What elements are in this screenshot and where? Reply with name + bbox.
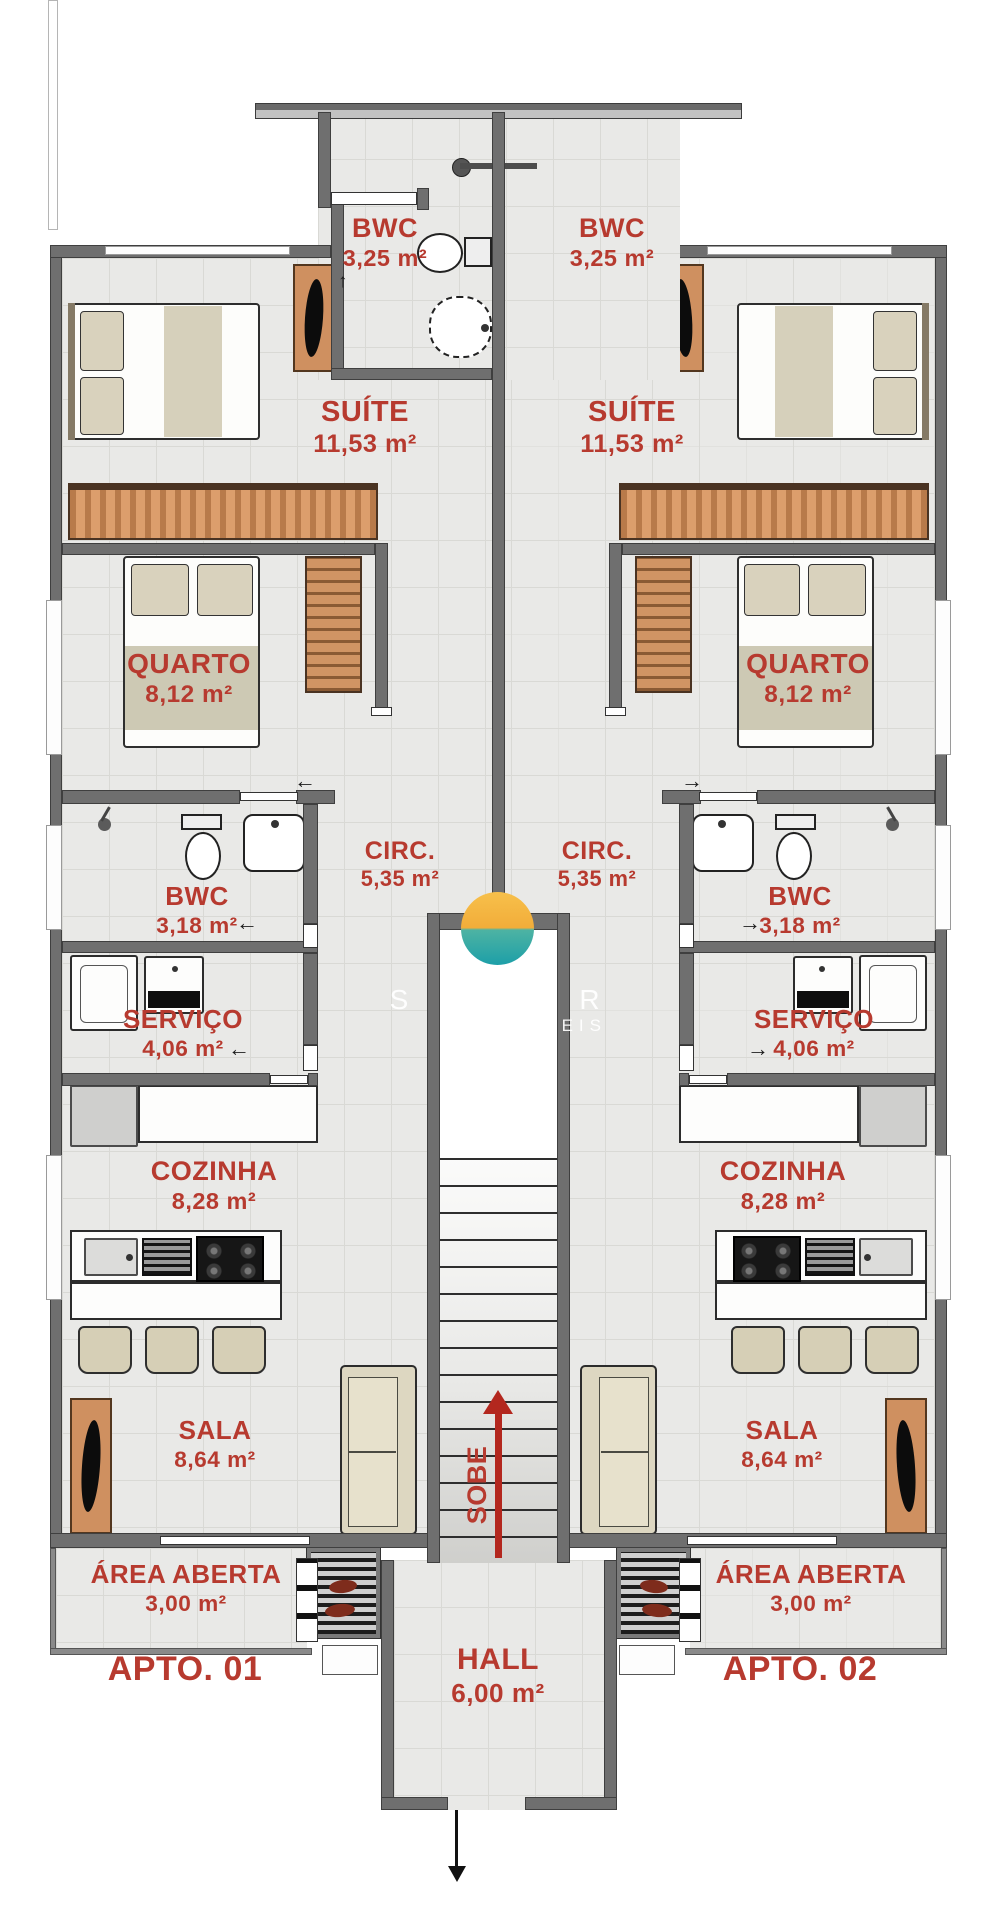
room-label-suite-right: SUÍTE 11,53 m²: [580, 396, 684, 459]
open-area-window: [322, 1645, 378, 1675]
open-area-edge-left: [50, 1548, 56, 1653]
stairs-direction-label: SOBE: [462, 1446, 492, 1525]
room-name: SALA: [179, 1415, 252, 1445]
room-label-quarto-right: QUARTO 8,12 m²: [746, 648, 870, 709]
hall-wall-bottom-left: [381, 1797, 448, 1810]
servico-cozinha-wall: [62, 1073, 270, 1086]
room-area: 8,28 m²: [151, 1188, 278, 1214]
sala-sliding-door: [160, 1536, 310, 1545]
room-area: 8,28 m²: [720, 1188, 847, 1214]
bar-stool: [78, 1326, 132, 1374]
room-name: SERVIÇO: [123, 1004, 243, 1034]
room-name: COZINHA: [720, 1156, 847, 1186]
bar-stool: [212, 1326, 266, 1374]
quarto-pillow: [131, 564, 189, 616]
stairs-up-arrow-line: [495, 1412, 502, 1558]
room-label-area-aberta-right: ÁREA ABERTA 3,00 m²: [716, 1560, 907, 1616]
door-arrow-icon: ↑: [338, 272, 348, 291]
room-label-cozinha-left: COZINHA 8,28 m²: [151, 1156, 278, 1215]
wardrobe-closet: [68, 483, 378, 540]
room-name: BWC: [579, 213, 645, 243]
stairwell-wall-left: [427, 913, 440, 1563]
room-area: 3,25 m²: [343, 245, 427, 271]
room-label-bwc-top-right: BWC 3,25 m²: [570, 213, 654, 272]
plant-icon: [79, 1419, 103, 1512]
entrance-door-line: [455, 1810, 458, 1868]
stairs-up-arrow-head: [483, 1390, 513, 1414]
bathroom-sink: [243, 814, 305, 872]
room-label-area-aberta-left: ÁREA ABERTA 3,00 m²: [91, 1560, 282, 1616]
watermark-text-fragment: A R: [514, 984, 619, 1016]
bwc-servico-wall: [62, 941, 318, 953]
room-label-circ-left: CIRC. 5,35 m²: [361, 837, 439, 891]
hall-wall-right: [604, 1560, 617, 1810]
room-name: SUÍTE: [588, 396, 676, 428]
suite-blanket: [164, 306, 222, 437]
plant-icon: [302, 278, 325, 357]
watermark-logo: [461, 892, 534, 965]
toilet-bowl: [185, 832, 221, 880]
suite-pillow: [80, 311, 124, 371]
entrance-arrow-icon: [448, 1866, 466, 1882]
room-name: SUÍTE: [321, 396, 409, 428]
bwc-door-lintel: [303, 924, 318, 948]
corridor-wall: [375, 543, 388, 713]
grill-food: [324, 1602, 355, 1618]
room-name: BWC: [768, 881, 832, 911]
quarto-door-lintel: [240, 792, 298, 801]
room-label-servico-right: SERVIÇO 4,06 m²: [754, 1005, 874, 1061]
side-window: [46, 825, 62, 930]
room-label-sala-right: SALA 8,64 m²: [741, 1416, 822, 1472]
room-area: 8,12 m²: [127, 681, 251, 708]
watermark-text-fragment: ÓVEIS: [525, 1016, 607, 1036]
floor-plan-canvas: ← ← ← ↑: [0, 0, 997, 1920]
room-label-servico-left: SERVIÇO 4,06 m²: [123, 1005, 243, 1061]
suite-bed-headboard: [68, 303, 75, 440]
bwc-side-wall: [303, 804, 318, 924]
room-area: 3,18 m²: [759, 913, 840, 938]
room-label-cozinha-right: COZINHA 8,28 m²: [720, 1156, 847, 1215]
room-label-quarto-left: QUARTO 8,12 m²: [127, 648, 251, 709]
room-area: 3,18 m²: [156, 913, 237, 938]
room-area: 8,64 m²: [174, 1447, 255, 1472]
room-label-sala-left: SALA 8,64 m²: [174, 1416, 255, 1472]
room-name: SALA: [746, 1415, 819, 1445]
side-window: [46, 1155, 62, 1300]
room-name: ÁREA ABERTA: [716, 1559, 907, 1589]
room-name: BWC: [352, 213, 418, 243]
stove-cooktop: [196, 1236, 264, 1282]
grill-side-panel: [296, 1558, 318, 1642]
room-label-bwc-left: BWC 3,18 m²: [156, 882, 237, 938]
room-name: ÁREA ABERTA: [91, 1559, 282, 1589]
room-area: 3,25 m²: [570, 245, 654, 271]
quarto-circ-wall: [62, 790, 240, 804]
room-area: 8,64 m²: [741, 1447, 822, 1472]
room-area: 3,00 m²: [91, 1591, 282, 1616]
room-name: HALL: [457, 1643, 539, 1676]
room-area: 5,35 m²: [558, 867, 636, 891]
quarto-dresser: [305, 556, 362, 693]
toilet-tank: [181, 814, 222, 830]
hall-wall-left: [381, 1560, 394, 1810]
breakfast-bar: [70, 1282, 282, 1320]
room-name: CIRC.: [562, 837, 633, 865]
room-name: QUARTO: [127, 648, 251, 679]
sala-plant-stand: [70, 1398, 112, 1534]
room-name: SERVIÇO: [754, 1004, 874, 1034]
grill-food: [328, 1579, 357, 1595]
room-name: BWC: [165, 881, 229, 911]
room-area: 3,00 m²: [716, 1591, 907, 1616]
top-window: [105, 246, 290, 255]
hall-wall-bottom-right: [525, 1797, 617, 1810]
room-area: 11,53 m²: [580, 430, 684, 458]
quarto-pillow: [197, 564, 253, 616]
bathroom-sink: [429, 296, 492, 358]
door-arrow-icon: ←: [236, 912, 258, 934]
cozinha-door-lintel: [270, 1075, 308, 1084]
bwc-top-bottom-wall: [331, 368, 492, 380]
unit-label-apto-01: APTO. 01: [108, 1650, 263, 1688]
unit-label-apto-02: APTO. 02: [723, 1650, 878, 1688]
kitchen-counter-top: [138, 1085, 318, 1143]
suite-plant-stand: [293, 264, 335, 372]
toilet-tank: [464, 237, 492, 267]
room-name: COZINHA: [151, 1156, 278, 1186]
sofa: [340, 1365, 417, 1535]
room-label-bwc-top-left: BWC 3,25 m²: [343, 213, 427, 272]
room-label-circ-right: CIRC. 5,35 m²: [558, 837, 636, 891]
refrigerator: [70, 1085, 138, 1147]
suite-quarto-wall: [62, 543, 375, 555]
suite-pillow: [80, 377, 124, 435]
room-area: 11,53 m²: [313, 430, 417, 458]
room-name: CIRC.: [365, 837, 436, 865]
shower-ledge-jamb: [417, 188, 429, 210]
room-area: 8,12 m²: [746, 681, 870, 708]
kitchen-sink: [84, 1238, 138, 1276]
cozinha-door-jamb: [308, 1073, 318, 1086]
bar-stool: [145, 1326, 199, 1374]
room-area: 4,06 m²: [123, 1036, 243, 1061]
room-label-hall: HALL 6,00 m²: [451, 1643, 544, 1708]
room-area: 5,35 m²: [361, 867, 439, 891]
servico-side-wall: [303, 953, 318, 1045]
door-arrow-icon: ←: [294, 770, 316, 792]
room-label-suite-left: SUÍTE 11,53 m²: [313, 396, 417, 459]
room-area: 4,06 m²: [754, 1036, 874, 1061]
dish-drain-rack: [142, 1238, 192, 1276]
vestibule-wall-upper: [318, 112, 331, 208]
party-wall-center: [492, 112, 505, 913]
room-area: 6,00 m²: [451, 1679, 544, 1708]
shower-ledge: [331, 192, 417, 205]
watermark-text-fragment: S: [390, 984, 419, 1016]
room-label-bwc-right: BWC 3,18 m²: [759, 882, 840, 938]
side-window: [46, 600, 62, 755]
corridor-door-lintel: [371, 707, 392, 716]
room-name: QUARTO: [746, 648, 870, 679]
servico-door-lintel: [303, 1045, 318, 1071]
